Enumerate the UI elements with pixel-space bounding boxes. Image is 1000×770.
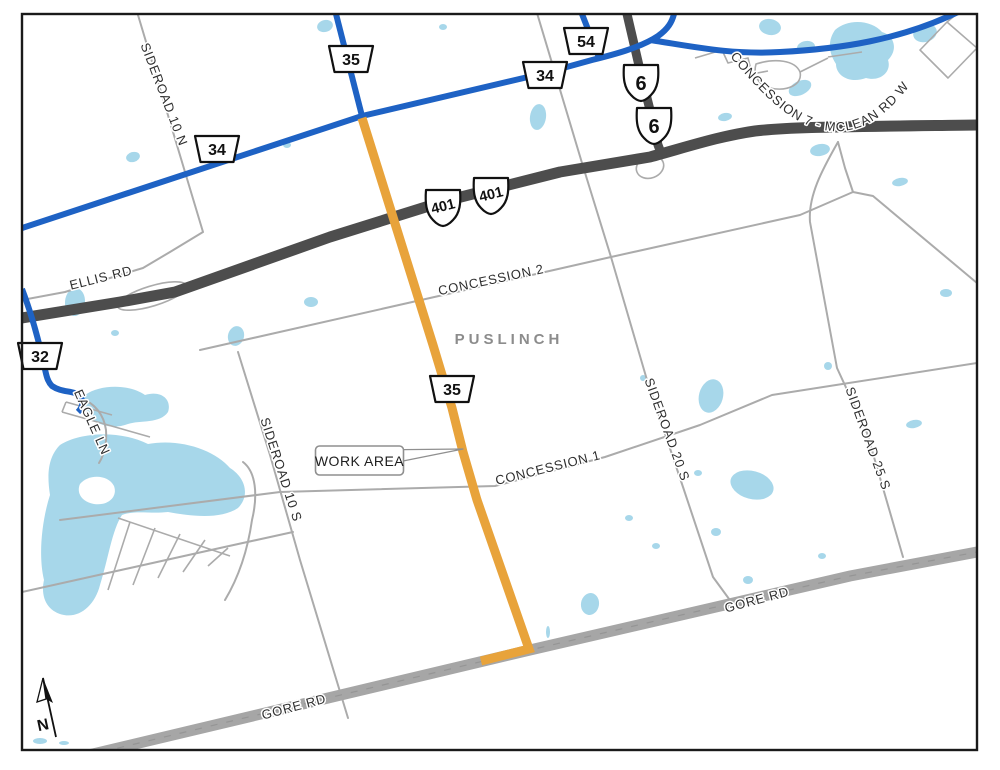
route-shields: 35 34 34 54 32 35 6 6 (18, 28, 671, 402)
pond (304, 297, 318, 307)
shield-number: 35 (443, 382, 461, 399)
pond (743, 576, 753, 584)
pond (711, 528, 721, 536)
gore-rd-west-label: GORE RD (260, 691, 328, 723)
sideroad-10-n-road (22, 15, 203, 300)
concession-1-label: CONCESSION 1 (494, 447, 602, 488)
gore-rd-east-label: GORE RD (723, 584, 791, 616)
sideroad-10-s-road (238, 352, 348, 718)
pond (694, 470, 702, 476)
shield-hwy-401-west: 401 (426, 190, 461, 226)
pond (695, 376, 727, 415)
shield-hwy-6-lower: 6 (637, 108, 672, 144)
north-arrow: N (36, 678, 56, 737)
work-area-callout: WORK AREA (315, 446, 463, 475)
pond (579, 592, 601, 617)
shield-number: 6 (635, 73, 646, 95)
shield-hwy-6-upper: 6 (624, 65, 659, 101)
pond (824, 362, 832, 370)
ellis-rd-label: ELLIS RD (68, 263, 134, 293)
puslinch-work-area-map: SIDEROAD 10 N CONCESSION 7 - MCLEAN RD W… (0, 0, 1000, 770)
sideroad-20-s-road (537, 13, 732, 603)
pond (809, 142, 831, 157)
pond (818, 553, 826, 559)
pond (316, 18, 335, 34)
shield-number: 6 (648, 116, 659, 138)
sideroad-10-n-label: SIDEROAD 10 N (138, 41, 191, 148)
highway-401-road (22, 125, 977, 318)
pond (546, 626, 550, 638)
north-arrow-n: N (36, 716, 51, 735)
pond (905, 419, 922, 430)
pond (111, 330, 119, 336)
shield-county-54: 54 (564, 28, 608, 54)
pond (717, 112, 732, 122)
pond (830, 22, 894, 80)
pond (758, 17, 782, 37)
map-canvas: SIDEROAD 10 N CONCESSION 7 - MCLEAN RD W… (0, 0, 1000, 770)
callout-label: WORK AREA (315, 453, 404, 469)
pond (652, 543, 660, 549)
pond (625, 515, 633, 521)
shield-number: 35 (342, 52, 360, 69)
pond (125, 150, 141, 163)
road-labels: SIDEROAD 10 N CONCESSION 7 - MCLEAN RD W… (68, 41, 912, 723)
municipality-label: PUSLINCH (455, 331, 564, 348)
shield-county-32: 32 (18, 343, 62, 369)
pond (59, 741, 69, 745)
pond (940, 289, 952, 297)
shield-hwy-401-east: 401 (474, 178, 509, 214)
pond (891, 177, 908, 188)
shield-number: 32 (31, 349, 49, 366)
shield-number: 34 (536, 68, 554, 85)
local-branch-road (838, 142, 977, 283)
shield-county-35-north: 35 (329, 46, 373, 72)
lake (41, 434, 245, 615)
pond (727, 466, 777, 504)
shield-county-34-mid: 34 (523, 62, 567, 88)
shield-number: 54 (577, 34, 595, 51)
sideroad-25-s-label: SIDEROAD 25 S (843, 385, 894, 492)
concession-2-label: CONCESSION 2 (437, 261, 546, 298)
shield-county-34-west: 34 (195, 136, 239, 162)
gore-rd-road (55, 552, 977, 763)
pond (528, 103, 547, 131)
shield-number: 34 (208, 142, 226, 159)
shield-county-35-mid: 35 (430, 376, 474, 402)
pond (33, 738, 47, 744)
pond (439, 24, 447, 30)
hamlet-streets (695, 50, 862, 89)
sideroad-10-s-label: SIDEROAD 10 S (257, 416, 305, 524)
